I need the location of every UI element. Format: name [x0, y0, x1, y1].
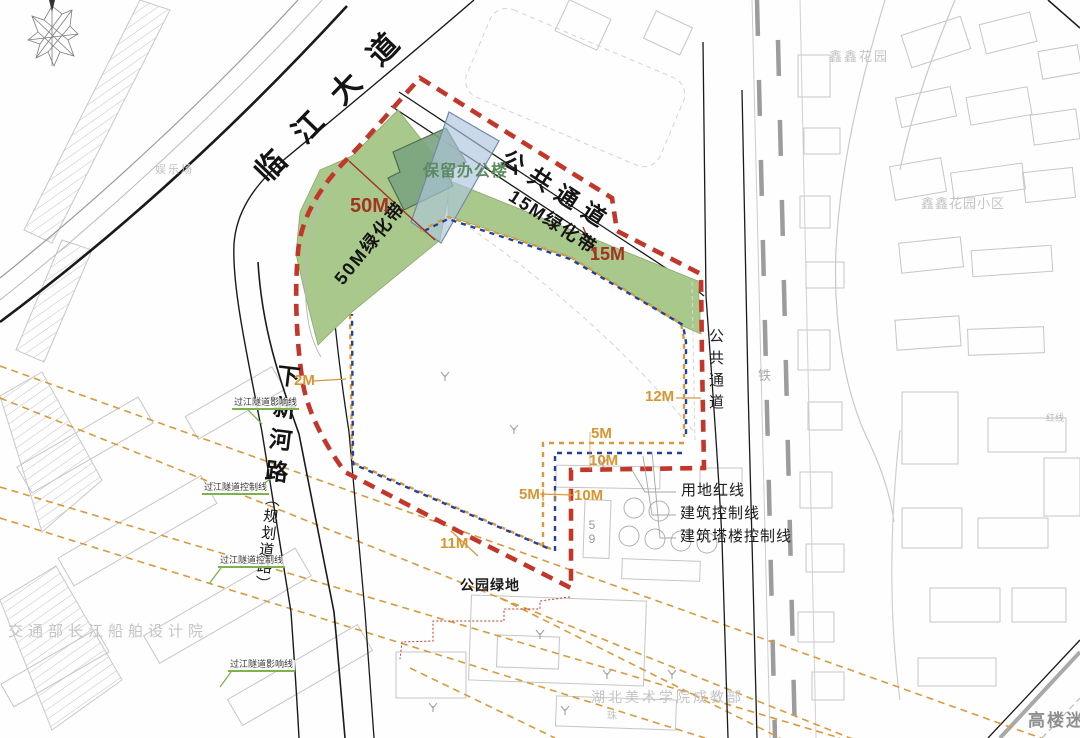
legend-site-red-line: 用地红线: [681, 483, 745, 498]
red-line-note-label: 红线: [1046, 414, 1064, 423]
dimension-10m-east: 10M: [589, 453, 618, 468]
railway-label: 铁: [758, 369, 771, 382]
tunnel-control-line-upper-label: 过江隧道控制线: [202, 483, 269, 495]
legend-tower-control-line: 建筑塔楼控制线: [680, 529, 792, 544]
dimension-12m: 12M: [645, 389, 674, 404]
green-belt-shapes: [296, 110, 701, 345]
tunnel-control-line-lower-label: 过江隧道控制线: [218, 556, 285, 568]
building-59-label: 59: [586, 518, 598, 546]
place-xinxin-garden: 鑫鑫花园: [829, 50, 889, 63]
place-ship-design-institute: 交通部长江船舶设计院: [8, 624, 208, 639]
dimension-15m: 15M: [590, 245, 625, 263]
dimension-10m-south: 10M: [574, 488, 603, 503]
retained-office-label: 保留办公楼: [423, 164, 508, 180]
tunnel-influence-line-lower-label: 过江隧道影响线: [228, 660, 295, 672]
watermark: 高楼迷: [1028, 712, 1080, 729]
place-zhu: 珠: [607, 712, 617, 722]
place-xinxin-garden-estate: 鑫鑫花园小区: [921, 197, 1005, 210]
road-label-public-passage-east: 公共通道: [708, 328, 723, 416]
dimension-11m: 11M: [440, 536, 468, 551]
place-art-academy: 湖北美术学院成教部: [591, 690, 744, 704]
tunnel-influence-line-upper-label: 过江隧道影响线: [232, 398, 299, 410]
park-green-space-label: 公园绿地: [460, 578, 520, 592]
legend-building-control-line: 建筑控制线: [680, 506, 760, 521]
background-buildings: [1, 0, 1080, 730]
dimension-50m: 50M: [350, 196, 389, 216]
legend-leader-lines: [632, 452, 676, 538]
hatched-building-rows: [0, 0, 170, 730]
compass-icon: [28, 0, 78, 66]
dimension-2m: 2M: [294, 373, 315, 388]
dimension-5m-south: 5M: [519, 487, 540, 502]
dimension-5m-east: 5M: [591, 426, 612, 441]
place-entertainment-ground: 娱乐场: [155, 165, 194, 176]
site-plan-map: 临江大道 下新河路（规划道路） 公共通道 公共通道 50M绿化带 15M绿化带 …: [0, 0, 1080, 738]
